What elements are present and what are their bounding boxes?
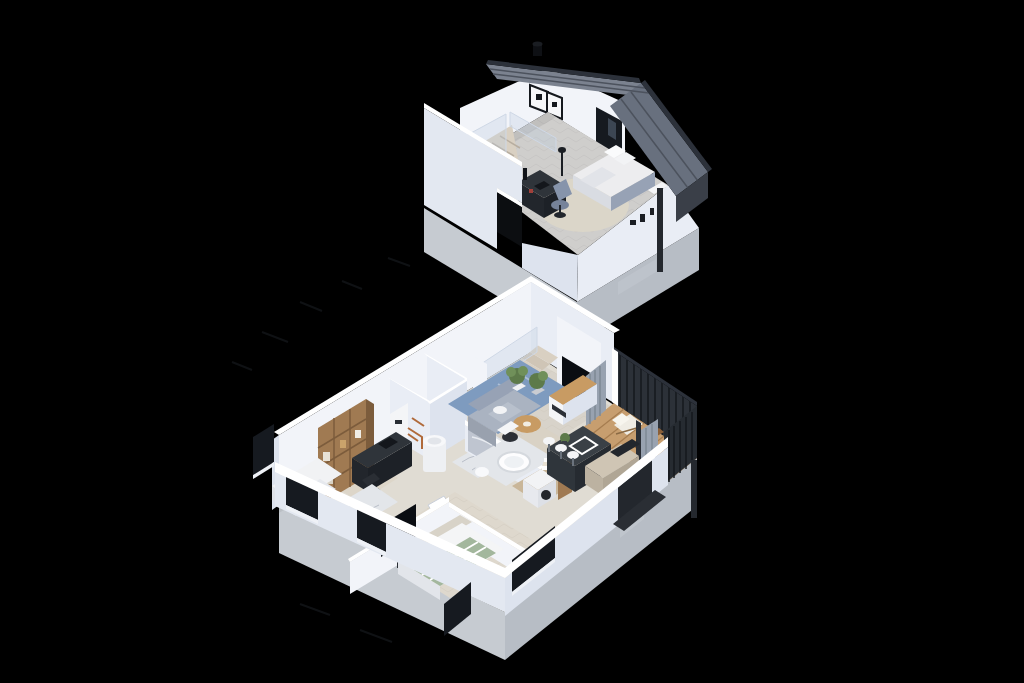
boiler-display [395,420,402,424]
sofa-throw [493,406,507,414]
floorplan-render [0,0,1024,683]
shelf-object [340,440,346,448]
red-accent [529,189,533,193]
water-heater [423,435,446,472]
glass-door-post [612,348,618,406]
roof-vent-cap [533,42,543,47]
frame-glyph [552,102,557,107]
attic-downspout [657,188,663,272]
frame-glyph [536,94,542,100]
ground-downspout [691,460,697,518]
desk-lamp [523,168,527,180]
toilet [475,467,489,477]
washer-door [541,490,551,500]
render-canvas [0,0,1024,683]
table-decor [523,422,531,427]
bathtub-basin [504,456,524,468]
shelf-object [323,452,330,461]
shelf-object [355,430,361,438]
